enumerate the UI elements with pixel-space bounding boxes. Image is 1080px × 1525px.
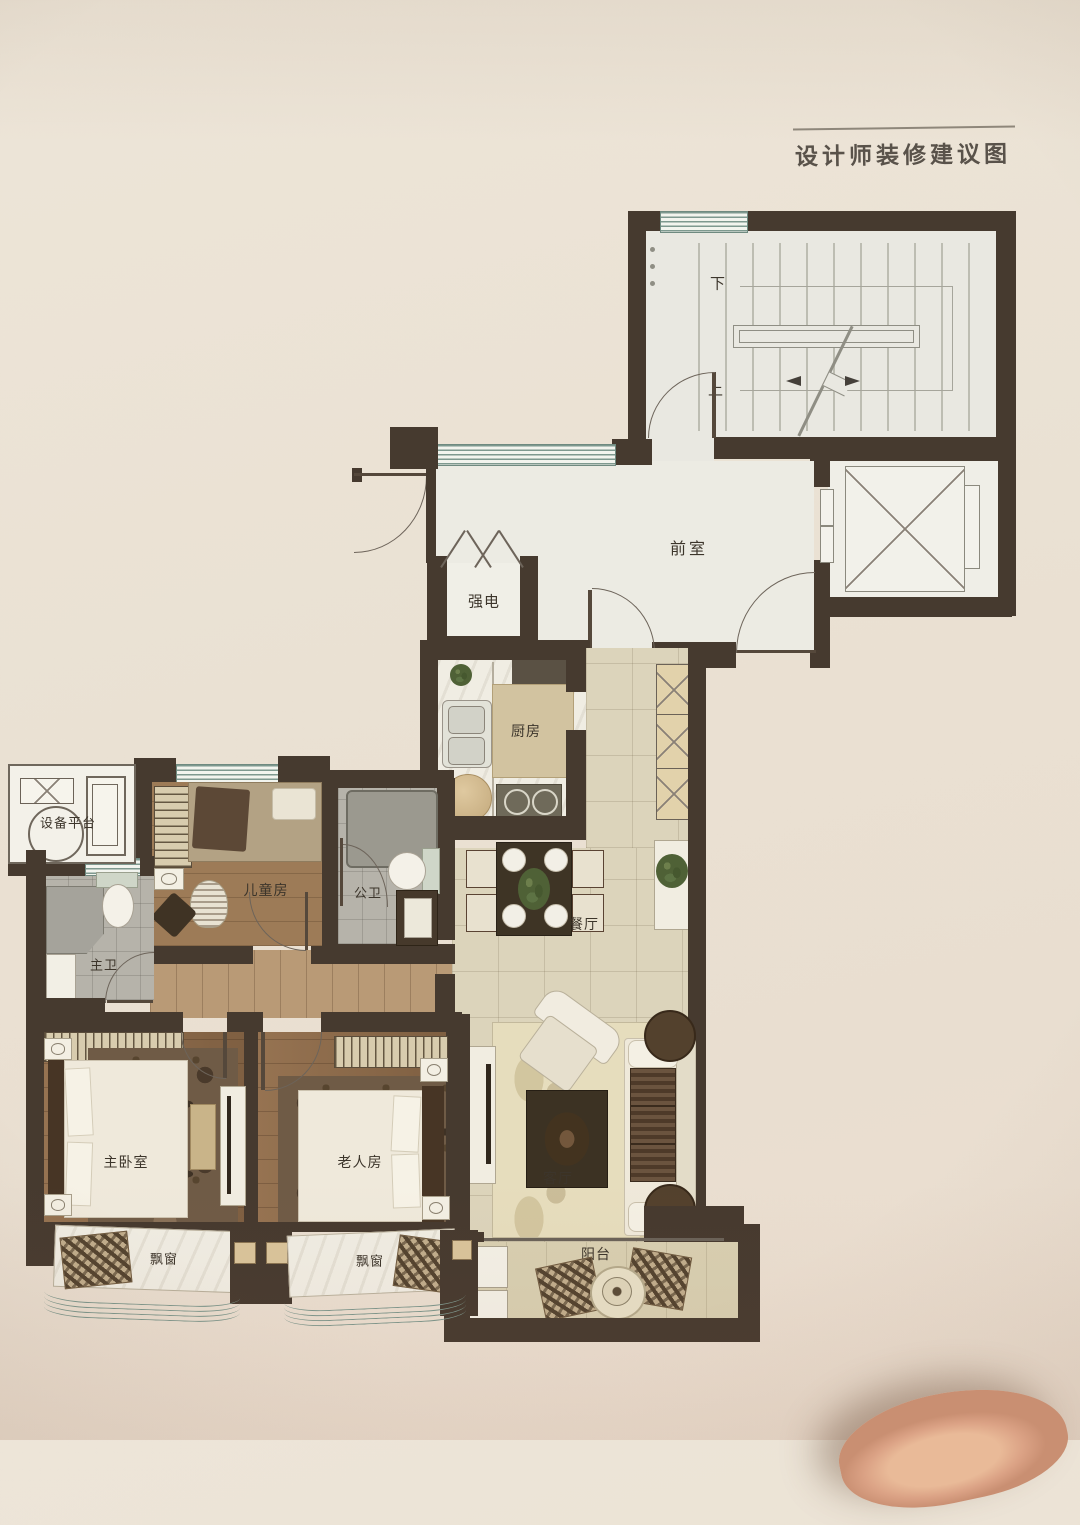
sofa-cushion: [630, 1144, 676, 1182]
hall-cabinet: [656, 664, 692, 716]
dining-chair: [466, 894, 498, 932]
side-table: [644, 1010, 696, 1062]
vanity-sink: [404, 898, 432, 938]
stair-arrow-left: [786, 376, 801, 386]
elderly-pillow: [391, 1095, 422, 1152]
tv-console-master: [220, 1086, 246, 1206]
photographed-plan: 设计师装修建议图 下 上 前室 强: [0, 0, 1080, 1440]
room-label-bay-left: 飘窗: [150, 1249, 178, 1268]
tv-master: [227, 1096, 231, 1194]
vestibule-floor: [436, 461, 814, 563]
tv-living: [486, 1064, 491, 1164]
wall-segment: [322, 944, 455, 964]
wall-segment: [426, 461, 436, 563]
elderly-nightstand: [422, 1196, 450, 1220]
dining-chair: [572, 850, 604, 888]
children-bed-throw: [192, 786, 250, 852]
bathroom-sink: [46, 954, 76, 1002]
room-label-kitchen: 厨房: [511, 721, 541, 741]
balcony-table-plate: [602, 1277, 632, 1306]
elderly-nightstand: [420, 1058, 448, 1082]
room-label-elderly: 老人房: [338, 1152, 383, 1172]
room-label-dining: 餐厅: [569, 914, 599, 934]
stairwell-window: [660, 211, 748, 233]
wall-segment: [612, 439, 652, 465]
wall-segment: [321, 1012, 462, 1032]
room-label-public-bath: 公卫: [354, 883, 382, 902]
children-nightstand: [154, 868, 184, 890]
corner-shower: [46, 886, 104, 954]
wall-segment: [566, 730, 586, 824]
wall-segment: [628, 211, 646, 457]
bay-glazing: [283, 1284, 466, 1330]
bed-bench: [190, 1104, 216, 1170]
master-bed-headboard: [48, 1060, 64, 1216]
sink-bowl: [448, 706, 485, 734]
toilet-bowl: [102, 884, 134, 928]
wall-segment: [566, 658, 586, 692]
wall-segment: [810, 597, 1012, 617]
stove-burner: [532, 789, 558, 815]
stove-burner: [504, 789, 530, 815]
stair-arrow-right: [845, 376, 860, 386]
wall-segment: [26, 850, 46, 1250]
wall-dot: [650, 281, 655, 286]
entry-hall-door-swing: [354, 476, 427, 553]
wall-segment: [810, 443, 1012, 461]
master-nightstand: [44, 1038, 72, 1060]
corner-cap: [234, 1242, 256, 1264]
room-label-master: 主卧室: [104, 1152, 149, 1172]
stair-handrail-inner: [739, 330, 914, 343]
entry-window: [436, 444, 616, 466]
table-centerpiece: [518, 868, 550, 910]
room-label-master-bath: 主卫: [90, 955, 118, 974]
corner-cap: [452, 1240, 472, 1260]
page-title: 设计师装修建议图: [795, 134, 1011, 171]
children-room-window: [176, 764, 284, 784]
wall-segment: [426, 640, 590, 660]
elevator-door-slot: [820, 526, 834, 563]
wall-segment: [435, 778, 455, 852]
room-label-electrical: 强电: [468, 591, 500, 612]
hall-cabinet: [656, 714, 692, 770]
kitchen-plant: [450, 664, 472, 686]
wall-segment: [311, 944, 322, 964]
wall-segment: [320, 770, 338, 950]
console-plant: [656, 854, 688, 888]
wall-segment: [258, 1012, 263, 1032]
dining-chair: [466, 850, 498, 888]
wall-dot: [650, 264, 655, 269]
elderly-pillow: [391, 1154, 421, 1209]
corner-cap: [266, 1242, 288, 1264]
elevator-door-slot: [820, 489, 834, 526]
balcony-slider-track: [468, 1238, 740, 1241]
room-label-platform: 设备平台: [40, 813, 96, 832]
ac-unit: [20, 778, 74, 804]
tv-console-living: [468, 1046, 496, 1184]
master-pillow: [64, 1067, 94, 1136]
wall-segment: [140, 856, 154, 876]
plate: [544, 904, 568, 928]
bay-glazing: [43, 1281, 240, 1326]
children-bed-pillow: [272, 788, 316, 820]
room-label-vestibule: 前室: [670, 535, 708, 559]
plate: [502, 904, 526, 928]
sofa-cushion: [630, 1068, 676, 1106]
toilet-bowl: [388, 852, 426, 890]
sink-bowl: [448, 737, 485, 765]
sofa-cushion: [630, 1106, 676, 1144]
wall-dot: [650, 247, 655, 252]
elevator-counterweight: [964, 485, 980, 569]
plate: [502, 848, 526, 872]
title-overline: [793, 125, 1015, 130]
fingertip: [829, 1369, 1077, 1524]
master-nightstand: [44, 1194, 72, 1216]
stair-down-label: 下: [710, 273, 726, 294]
wall-segment: [26, 1012, 183, 1032]
room-label-living: 客厅: [543, 1168, 573, 1188]
plate: [544, 848, 568, 872]
children-wardrobe: [154, 786, 192, 868]
elevator-shaft: [845, 466, 965, 592]
wall-segment: [444, 1318, 760, 1342]
hall-cabinet: [656, 768, 692, 820]
desk-chair: [190, 880, 228, 928]
stair-door-recess-floor: [646, 437, 714, 463]
room-label-bay-right: 飘窗: [356, 1251, 384, 1270]
wall-segment: [996, 211, 1016, 616]
